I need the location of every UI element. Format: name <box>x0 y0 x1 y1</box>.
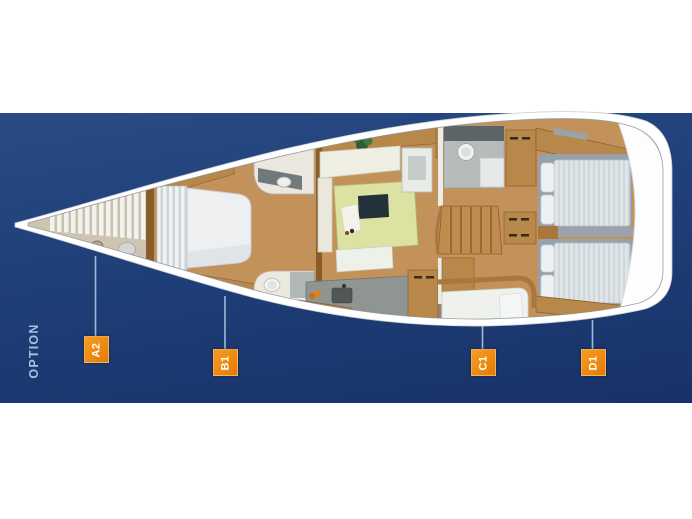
table-dark-panel <box>358 194 389 219</box>
cabinet-handle <box>414 276 422 279</box>
cabinet-handle <box>510 137 518 140</box>
shower-pan <box>480 158 504 187</box>
divider-cabinet <box>538 226 558 239</box>
towel-stripe <box>274 306 277 311</box>
toilet-bowl <box>267 281 277 289</box>
yacht-floorplan-illustration <box>0 0 692 519</box>
pillow <box>541 195 554 224</box>
cabinet-handle <box>426 276 434 279</box>
forward-berth-head-slats <box>157 186 187 270</box>
aft-top-mattress <box>554 160 630 226</box>
option-label: OPTION <box>27 323 41 378</box>
salon-side-seat <box>318 178 332 252</box>
faucet-icon <box>342 284 346 288</box>
aft-bulkhead-wall <box>438 124 443 206</box>
towel-stripe <box>264 306 267 311</box>
forepeak-slatted-berth <box>50 176 148 240</box>
cabin-label-d1-text: D1 <box>588 355 600 370</box>
mid-drawer-unit <box>504 212 536 244</box>
head-counter <box>444 126 504 141</box>
table-decor <box>350 229 354 233</box>
pillow <box>541 245 554 272</box>
companionway-stairs <box>437 206 502 254</box>
forward-bulkhead <box>146 150 154 320</box>
cabin-label-d1: D1 <box>581 349 606 376</box>
locker-handle <box>196 155 205 158</box>
cabinet-handle <box>522 137 530 140</box>
locker-handle <box>252 137 261 140</box>
cabin-label-a2: A2 <box>84 336 109 363</box>
salon-bench <box>336 246 393 272</box>
cabin-label-c1-text: C1 <box>478 355 490 370</box>
aft-bottom-mattress <box>554 243 630 303</box>
cabin-label-c1: C1 <box>471 349 496 376</box>
yacht-hull <box>15 110 680 340</box>
fridge-lid <box>408 156 426 180</box>
aft-head <box>444 126 504 188</box>
drawer-handle <box>509 218 517 221</box>
washbasin-bowl <box>462 148 471 157</box>
hull-interior <box>20 110 680 340</box>
towel-stripe <box>269 306 272 311</box>
forepeak-area <box>20 120 152 330</box>
fruit-bowl <box>309 293 315 299</box>
drawer-handle <box>521 218 529 221</box>
cabin-label-a2-text: A2 <box>91 342 103 357</box>
yacht-deckplan-figure: OPTION A2 B1 C1 D1 <box>0 0 692 519</box>
table-decor <box>345 231 349 235</box>
galley-sink <box>332 288 352 303</box>
cabin-label-b1: B1 <box>213 349 238 376</box>
cabin-label-b1-text: B1 <box>220 355 232 370</box>
head-shelf <box>254 129 314 146</box>
drawer-handle <box>509 234 517 237</box>
sink-icon <box>277 177 291 187</box>
pillow <box>541 163 554 192</box>
drawer-handle <box>521 234 529 237</box>
locker-handle <box>282 134 291 137</box>
